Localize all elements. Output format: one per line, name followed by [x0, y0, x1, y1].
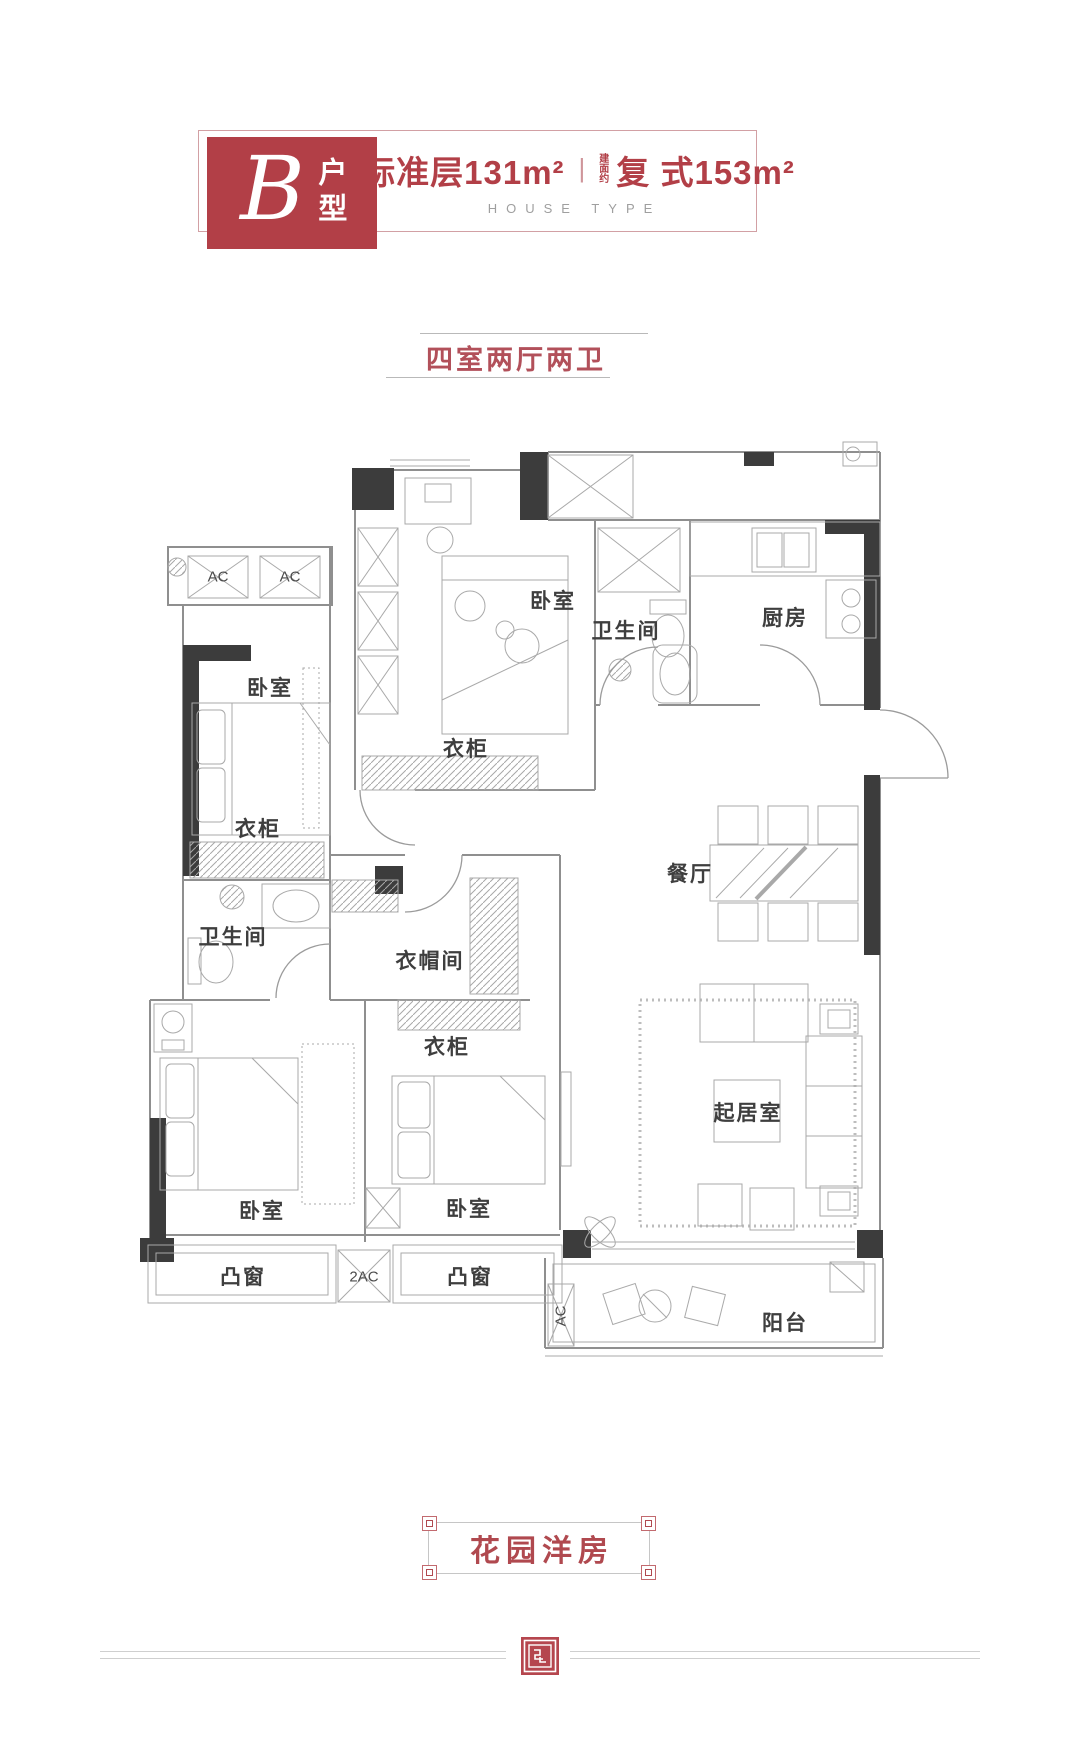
label-ac-1: AC [208, 569, 229, 586]
room-label-balcony: 阳台 [762, 1307, 808, 1337]
banner-title: 花园洋房 [429, 1523, 649, 1573]
footer-rule-right [570, 1651, 980, 1659]
room-label-bedroom-topleft: 卧室 [247, 672, 293, 702]
door-arcs [276, 645, 948, 998]
room-label-wardrobe-left: 衣柜 [235, 813, 281, 843]
room-label-baywindow-left: 凸窗 [220, 1261, 266, 1291]
flyer-page: 建面约 标准层131m² | 建面约 复 式153m² HOUSE TYPE B… [0, 0, 1080, 1750]
room-label-bedroom-topmiddle: 卧室 [530, 585, 576, 615]
room-label-cloakroom: 衣帽间 [396, 945, 465, 975]
label-2ac: 2AC [349, 1269, 378, 1286]
room-label-bedroom-bottommiddle: 卧室 [446, 1193, 492, 1223]
room-label-kitchen: 厨房 [762, 602, 808, 632]
room-label-bedroom-bottomleft: 卧室 [239, 1195, 285, 1225]
seal-icon [521, 1637, 559, 1675]
room-label-bathroom-top: 卫生间 [592, 615, 661, 645]
room-label-livingroom: 起居室 [714, 1097, 783, 1127]
room-label-wardrobe-bottom: 衣柜 [424, 1031, 470, 1061]
room-label-baywindow-middle: 凸窗 [447, 1261, 493, 1291]
label-ac-balcony: AC [553, 1306, 570, 1327]
room-label-bathroom-left: 卫生间 [199, 921, 268, 951]
room-label-dining: 餐厅 [667, 858, 713, 888]
footer-rule-left [100, 1651, 506, 1659]
banner-box: 花园洋房 [428, 1522, 650, 1574]
room-label-wardrobe-top: 衣柜 [443, 733, 489, 763]
floor-plan [0, 0, 1080, 1750]
label-ac-2: AC [280, 569, 301, 586]
